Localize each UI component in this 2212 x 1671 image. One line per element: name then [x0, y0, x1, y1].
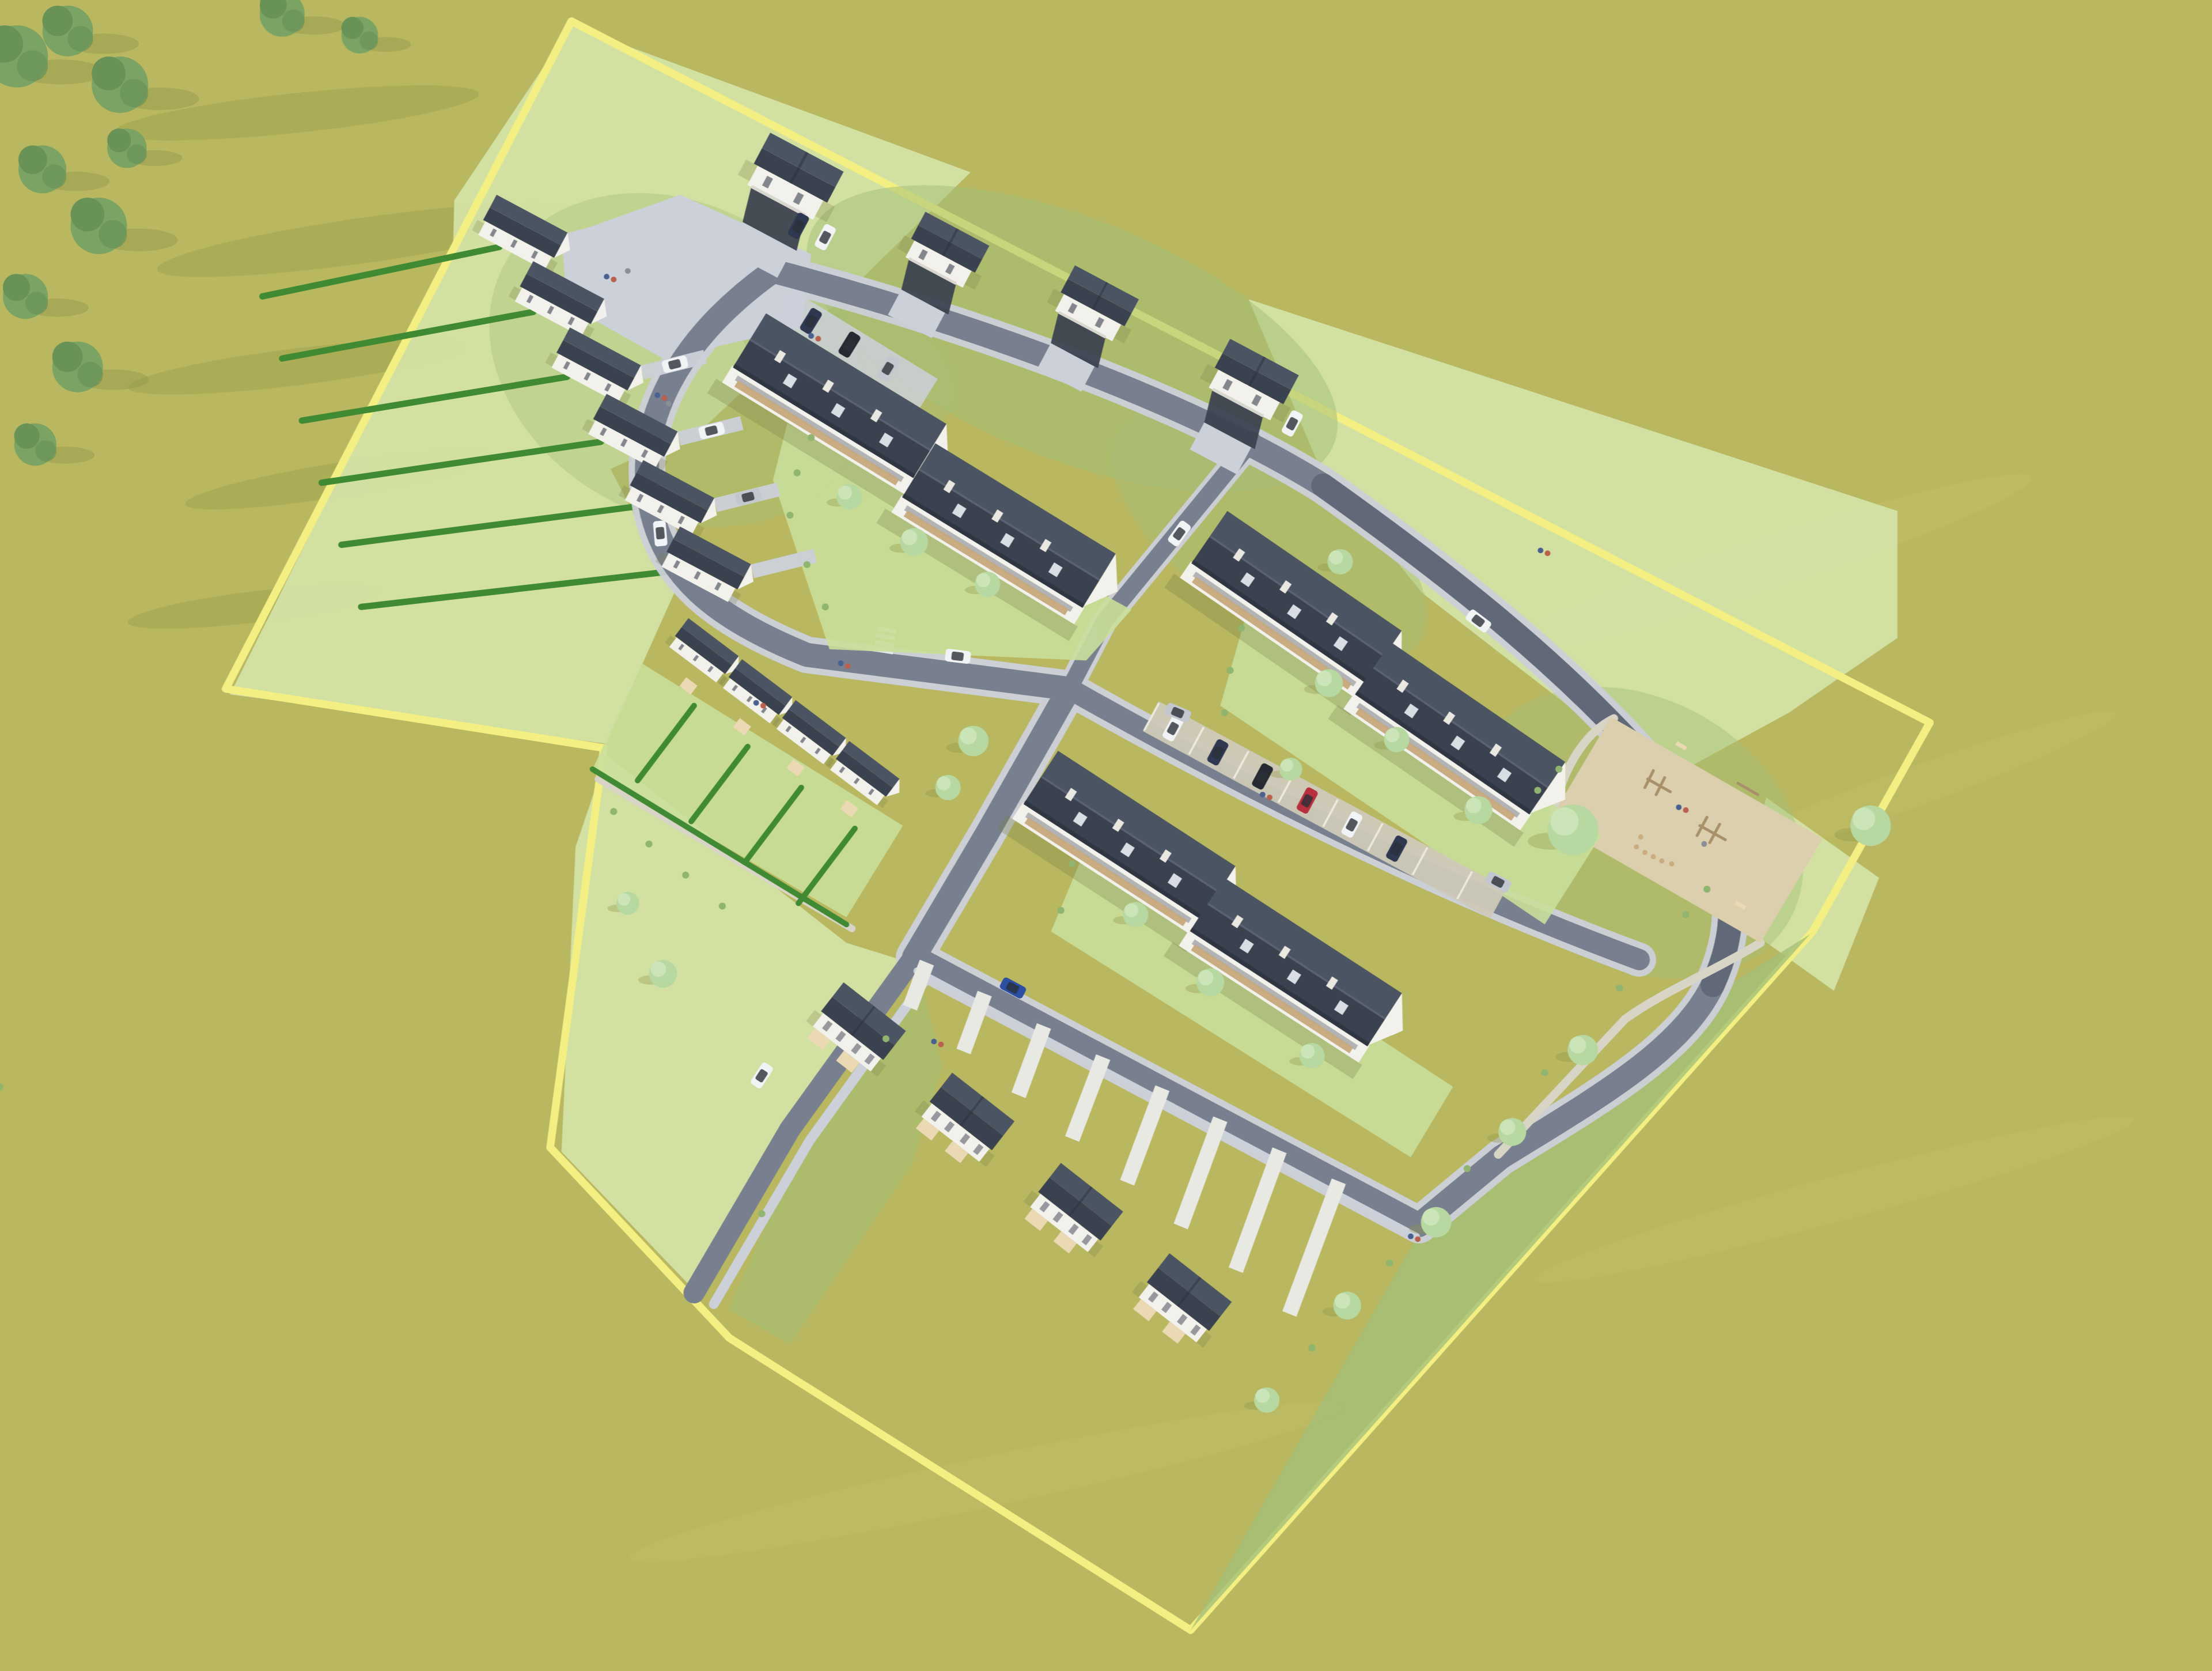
- car-white-driving: [653, 520, 668, 547]
- aerial-site-plan-render: [0, 0, 2212, 1671]
- site-plan-canvas: [0, 0, 2212, 1671]
